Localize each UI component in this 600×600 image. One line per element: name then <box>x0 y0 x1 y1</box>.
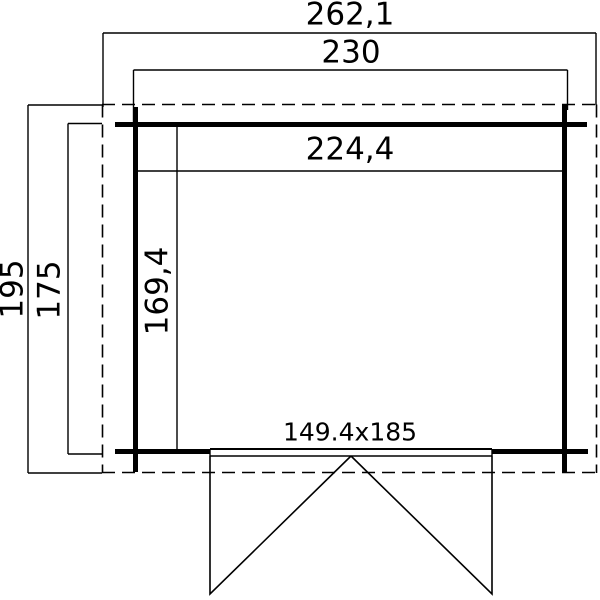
label-frame-depth: 175 <box>35 260 66 319</box>
dim-line-frame-width <box>134 70 568 127</box>
door-leaves <box>210 456 492 594</box>
label-inner-width: 224,4 <box>306 135 395 166</box>
label-inner-depth: 169,4 <box>143 247 174 336</box>
floor-plan-drawing <box>0 0 600 600</box>
door-leaf-right <box>351 456 492 594</box>
label-outer-depth: 195 <box>0 259 29 318</box>
dim-line-frame-depth <box>68 124 102 455</box>
floor-plan-canvas: 262,1 230 224,4 195 175 169,4 149.4x185 <box>0 0 600 600</box>
label-outer-width: 262,1 <box>306 0 395 31</box>
door-leaf-left <box>210 456 351 594</box>
label-door-size: 149.4x185 <box>283 420 417 445</box>
label-frame-width: 230 <box>321 38 380 69</box>
door-opening <box>210 449 492 456</box>
